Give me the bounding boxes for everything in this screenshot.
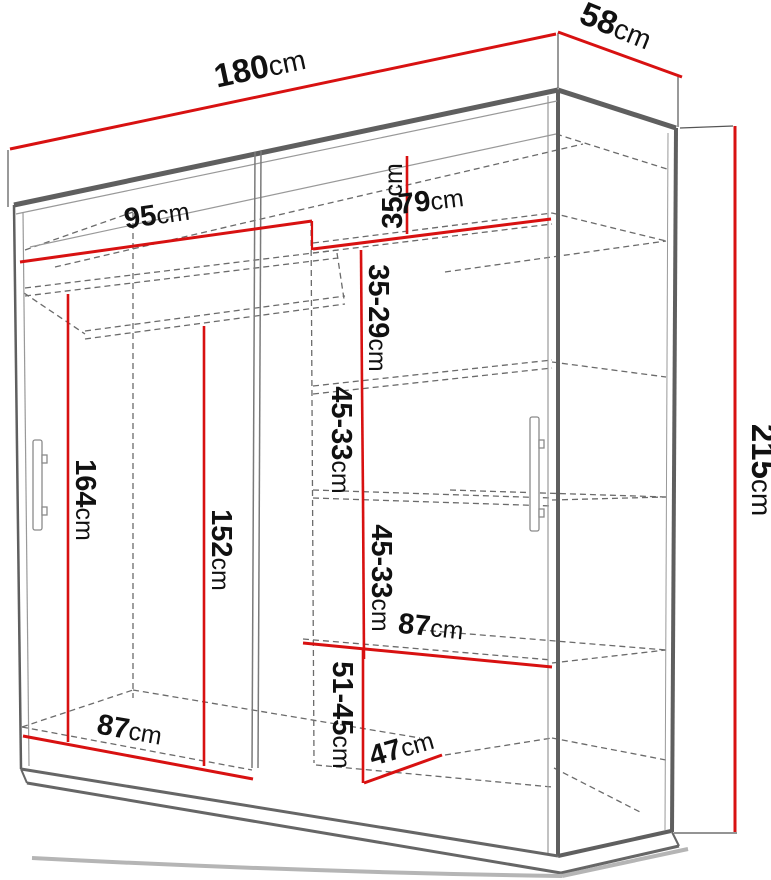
shelf-d-depth-dashed	[552, 650, 666, 663]
dim-label-87-right: 87cm	[397, 608, 466, 647]
shelf-b-depth-dashed	[552, 362, 666, 377]
dim-label-152: 152cm	[205, 509, 237, 591]
dim-label-45-33a: 45-33cm	[325, 386, 357, 494]
bottom-front-edge	[21, 769, 558, 856]
wardrobe-dimension-diagram: 180cm 58cm 215cm 95cm 79cm 35cm 35-29cm …	[0, 0, 771, 880]
left-floor-back-dashed	[133, 690, 420, 738]
floor-shadow-side	[562, 849, 688, 876]
front-left-edge	[14, 205, 21, 769]
partition-dashed	[311, 220, 314, 763]
dim-label-35: 35cm	[377, 163, 409, 229]
dim-line-35-29	[361, 250, 362, 386]
rod-end-diagonal-right	[337, 253, 344, 299]
diagram-canvas: 180cm 58cm 215cm 95cm 79cm 35cm 35-29cm …	[0, 0, 771, 880]
handle-tab-top	[42, 455, 47, 463]
shelf-b-upper-dashed	[313, 360, 552, 386]
dim-label-95: 95cm	[122, 195, 191, 236]
dim-line-45-33a	[362, 386, 363, 497]
ceiling-depth-dashed-right	[556, 134, 670, 170]
handle-tab-top	[539, 440, 544, 448]
top-right-edge	[558, 90, 676, 128]
handle-bar	[530, 417, 539, 531]
rod-front-line-1	[85, 296, 345, 331]
dim-line-45-33b	[363, 497, 364, 659]
rod-end-diagonal-left	[24, 293, 85, 334]
door-handle-right	[530, 417, 544, 531]
top-rail-line	[16, 101, 557, 214]
dim-label-164: 164cm	[69, 459, 101, 541]
dim-label-58: 58cm	[575, 0, 658, 56]
handle-tab-bottom	[539, 509, 544, 517]
dim-label-47: 47cm	[366, 724, 438, 773]
door-handle-left	[33, 440, 47, 530]
shelf-a-depth-dashed	[552, 213, 666, 241]
handle-tab-bottom	[42, 507, 47, 515]
dim-label-87-left: 87cm	[94, 709, 164, 752]
shelf-a-back-dashed	[445, 241, 666, 272]
dim-line-79	[313, 219, 551, 249]
shelf-c-lower-dashed	[313, 498, 552, 506]
right-floor-diagonal-dashed	[445, 738, 552, 755]
door-gap-line-2	[258, 151, 261, 768]
top-front-edge	[14, 90, 558, 205]
dim-label-51-45: 51-45cm	[326, 661, 358, 769]
dim-label-180: 180cm	[211, 39, 309, 94]
right-floor-side-dashed	[554, 768, 640, 812]
dim-label-45-33b: 45-33cm	[365, 524, 397, 632]
right-floor-back-dashed	[552, 738, 666, 760]
handle-bar	[33, 440, 42, 530]
side-rear-inner-line	[665, 133, 668, 830]
side-plinth-corner	[672, 832, 679, 846]
rod-back-line-2	[25, 258, 338, 296]
dim-label-215: 215cm	[745, 424, 771, 516]
dim-label-35-29: 35-29cm	[362, 264, 394, 372]
door-gap-line-1	[252, 152, 255, 768]
ceiling-front-line	[30, 134, 556, 247]
shelf-c-depth-dashed	[552, 497, 666, 500]
side-rear-edge	[672, 128, 676, 832]
ext-215-top	[680, 126, 733, 128]
rod-front-line-2	[85, 304, 345, 339]
plinth-front-line	[27, 783, 561, 873]
